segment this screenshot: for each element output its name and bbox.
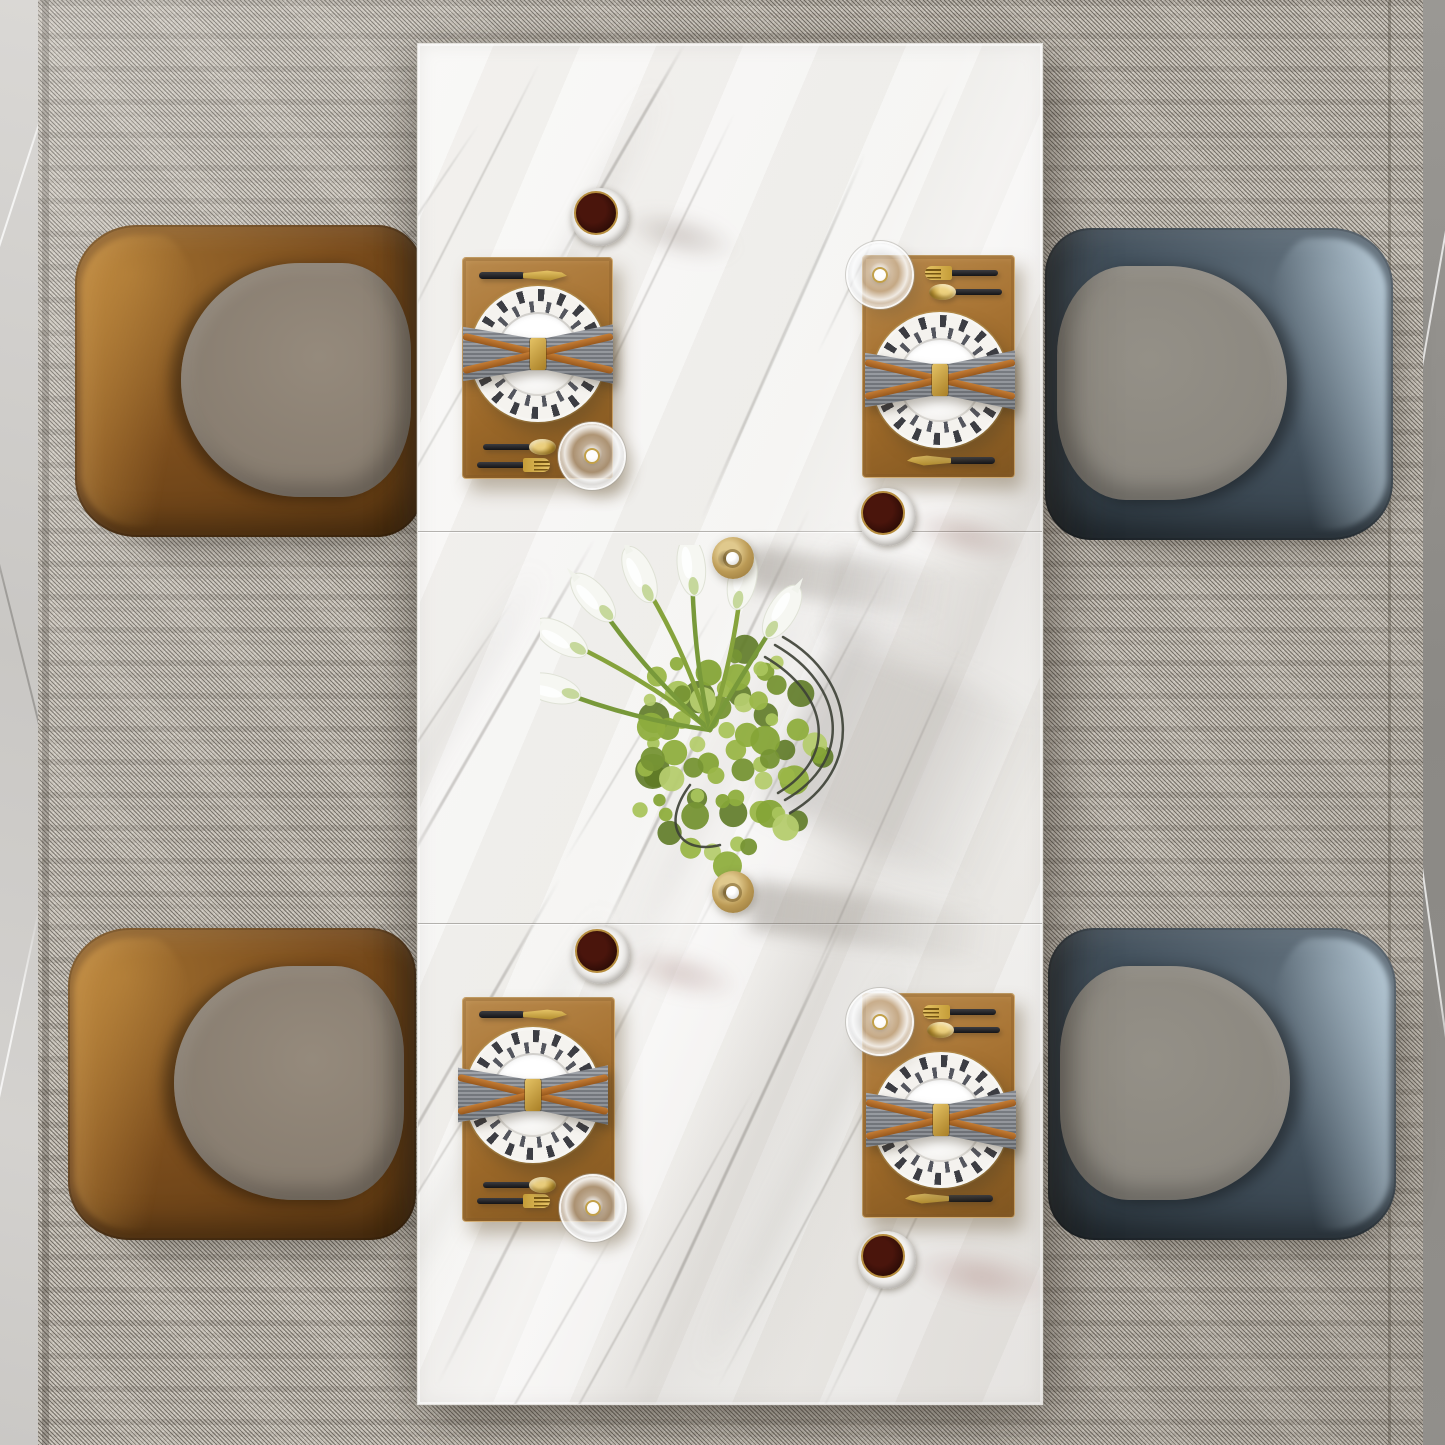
spoon-handle <box>483 1182 531 1188</box>
knife-handle <box>947 1195 993 1202</box>
dining-chair-top-left <box>75 225 423 537</box>
chair-seat-cushion <box>1057 266 1287 500</box>
dining-chair-top-right <box>1045 228 1393 540</box>
dark-drink <box>574 191 618 235</box>
knife-blade <box>907 455 951 466</box>
spoon <box>483 1176 573 1194</box>
place-setting-bottom-left <box>462 997 615 1222</box>
fork-handle <box>477 1198 525 1204</box>
napkin-fabric <box>463 323 613 385</box>
fork-handle <box>477 462 525 468</box>
spoon-body <box>910 1021 1000 1039</box>
place-setting-top-left <box>462 257 613 479</box>
marble-floor-right <box>1423 0 1445 1445</box>
spoon <box>910 1021 1000 1039</box>
tumbler-glass <box>561 1176 625 1240</box>
fork <box>477 1192 567 1210</box>
knife-body <box>479 1006 569 1024</box>
napkin-buckle <box>525 1078 541 1112</box>
coffee-cup-right-middle <box>858 488 916 546</box>
napkin-bow <box>865 349 1015 411</box>
spoon-handle <box>952 1027 1000 1033</box>
napkin-buckle <box>530 337 546 371</box>
spoon-handle <box>954 289 1002 295</box>
coffee-cup-top <box>571 188 629 246</box>
candle-pearl <box>726 886 739 899</box>
place-setting-bottom-right <box>862 993 1015 1218</box>
napkin-buckle <box>932 363 948 397</box>
calla-lily <box>755 570 815 644</box>
fork-body <box>908 264 998 282</box>
glass-center-ring <box>585 1200 601 1216</box>
napkin-bow <box>866 1089 1016 1151</box>
tumbler-glass <box>560 424 624 488</box>
coffee-cup-left-middle <box>572 926 630 984</box>
napkin-buckle <box>933 1103 949 1137</box>
spoon-bowl <box>929 284 956 300</box>
calla-lily <box>673 545 709 597</box>
knife <box>905 452 995 470</box>
fork-handle <box>948 1009 996 1015</box>
spoon-handle <box>483 444 531 450</box>
fork <box>906 1003 996 1021</box>
calla-lily <box>610 545 664 608</box>
fork-tines <box>534 1195 550 1207</box>
tumbler-glass <box>848 243 912 307</box>
spoon-bowl <box>529 439 556 455</box>
knife-handle <box>479 1011 525 1018</box>
coffee-cup-bottom <box>858 1231 916 1289</box>
chair-seat-cushion <box>181 263 411 497</box>
glass-center-ring <box>584 448 600 464</box>
dining-scene <box>0 0 1445 1445</box>
napkin-fabric <box>865 349 1015 411</box>
fork-head <box>925 266 952 280</box>
fork-head <box>523 458 550 472</box>
hydrangea-foliage <box>632 635 833 881</box>
fork-body <box>477 456 567 474</box>
fork <box>908 264 998 282</box>
fork-head <box>523 1194 550 1208</box>
dark-drink <box>861 1234 905 1278</box>
glass-center-ring <box>872 1014 888 1030</box>
fork-tines <box>923 1006 939 1018</box>
knife-blade <box>523 1009 567 1020</box>
fork-head <box>923 1005 950 1019</box>
calla-lily <box>556 558 623 629</box>
knife-body <box>905 452 995 470</box>
knife-body <box>479 267 569 285</box>
flower-centerpiece <box>540 545 850 885</box>
chair-seat-cushion <box>1060 966 1290 1200</box>
dark-drink <box>861 491 905 535</box>
place-setting-top-right <box>862 255 1015 478</box>
fork-tines <box>534 459 550 471</box>
glass-center-ring <box>872 267 888 283</box>
calla-lily <box>540 665 584 710</box>
dining-chair-bottom-right <box>1048 928 1396 1240</box>
candle-pearl <box>726 552 739 565</box>
dining-chair-bottom-left <box>68 928 416 1240</box>
candle-holder-bottom <box>712 871 754 913</box>
napkin-bow <box>463 323 613 385</box>
spoon-bowl <box>529 1177 556 1193</box>
tumbler-glass <box>848 990 912 1054</box>
napkin-bow <box>458 1064 608 1126</box>
fork-handle <box>950 270 998 276</box>
napkin-fabric <box>458 1064 608 1126</box>
spoon-bowl <box>927 1022 954 1038</box>
fork-tines <box>925 267 941 279</box>
dark-drink <box>575 929 619 973</box>
knife-blade <box>523 270 567 281</box>
spoon-body <box>912 283 1002 301</box>
fork-body <box>906 1003 996 1021</box>
napkin-fabric <box>866 1089 1016 1151</box>
fork <box>477 456 567 474</box>
knife-body <box>903 1190 993 1208</box>
knife-blade <box>905 1193 949 1204</box>
chair-seat-cushion <box>174 966 404 1200</box>
candle-holder-top <box>712 537 754 579</box>
spoon-body <box>483 1176 573 1194</box>
marble-floor-left <box>0 0 38 1445</box>
calla-lily <box>540 605 594 666</box>
floor-crack <box>0 903 41 1216</box>
knife <box>903 1190 993 1208</box>
knife <box>479 267 569 285</box>
knife-handle <box>479 272 525 279</box>
knife-handle <box>949 457 995 464</box>
knife <box>479 1006 569 1024</box>
fork-body <box>477 1192 567 1210</box>
spoon <box>912 283 1002 301</box>
